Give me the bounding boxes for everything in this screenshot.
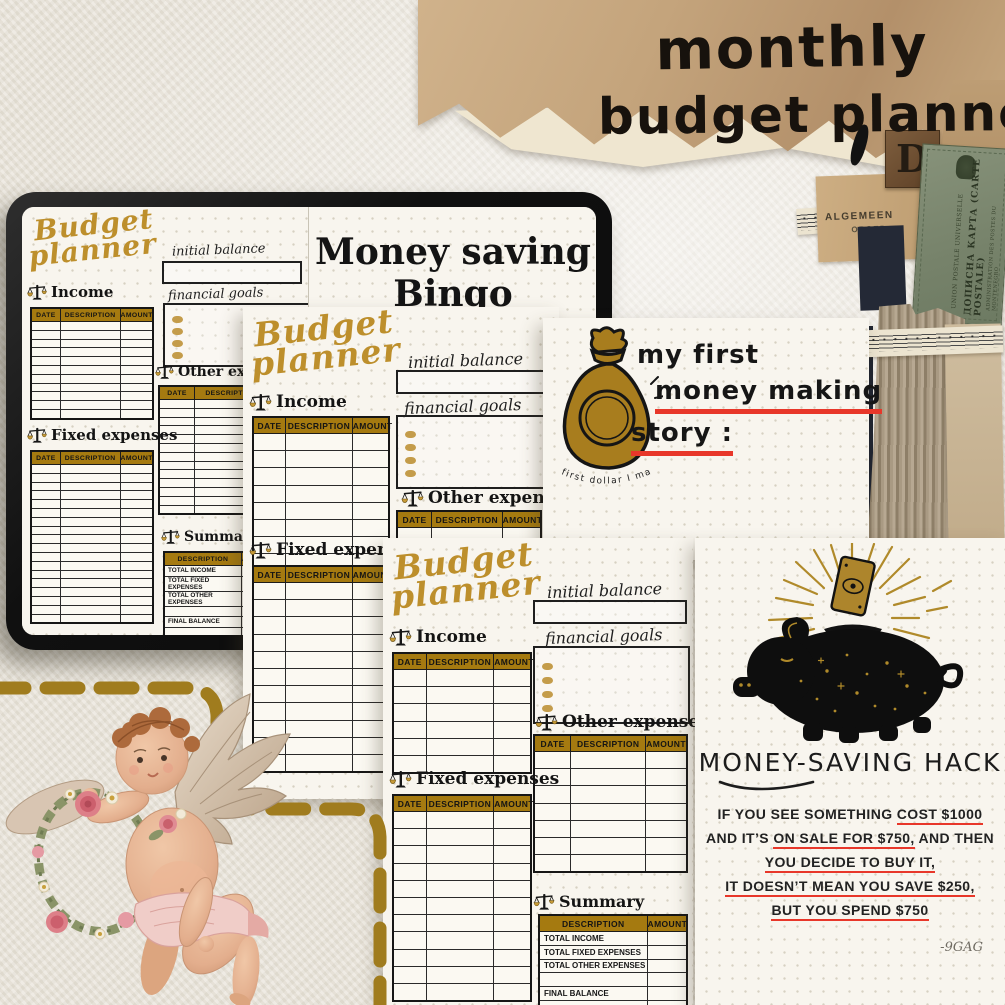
income-table: DATEDESCRIPTIONAMOUNT [392,652,532,774]
goal-bullet-icon [405,470,416,477]
balance-scale-icon [161,529,180,545]
other-expenses-heading: Other expenses [535,712,709,732]
hack-signature: -9GAG [940,940,983,955]
story-line3: story : [631,418,733,448]
goal-bullet-icon [172,328,183,335]
planner-page-3: Budget planner initial balance Income DA… [383,538,693,1005]
money-saving-hack-page: MONEY-SAVING HACK IF YOU SEE SOMETHING C… [695,538,1005,1005]
initial-balance-label: initial balance [172,241,266,259]
balance-scale-icon [249,541,272,560]
main-title-line2: budget planner [598,84,1005,146]
planner-script-title: Budget planner [392,539,542,612]
initial-balance-label: initial balance [547,579,663,602]
balance-scale-icon [389,770,412,789]
financial-goals-box [396,415,546,489]
initial-balance-label: initial balance [408,349,524,372]
summary-table: DESCRIPTIONAMOUNTTOTAL INCOMETOTAL FIXED… [538,914,688,1005]
main-title-line1: monthly [641,13,942,83]
goal-bullet-icon [542,705,553,712]
planner-script-title: Budget planner [252,306,402,379]
underline-swoosh-icon [717,778,817,794]
goal-bullet-icon [172,340,183,347]
goal-bullet-icon [172,352,183,359]
planner-script-title: Budget planner [33,207,158,268]
goal-bullet-icon [405,457,416,464]
vintage-postcard: UNION POSTALE UNIVERSELLE ДОПИСНА КАРТА … [912,143,1005,326]
income-section-heading: Income [389,627,487,647]
initial-balance-box [533,600,687,624]
initial-balance-box [396,370,546,394]
income-section-heading: Income [27,283,113,301]
goal-bullet-icon [172,316,183,323]
navy-fabric [858,225,907,311]
fixed-expenses-table: DATEDESCRIPTIONAMOUNT [30,450,154,624]
financial-goals-label: financial goals [168,285,264,303]
story-line2: money making [655,376,882,406]
goal-bullet-icon [542,677,553,684]
income-table: DATEDESCRIPTIONAMOUNT [30,307,154,420]
balance-scale-icon [27,427,47,444]
balance-scale-icon [533,893,555,911]
hack-body-text: IF YOU SEE SOMETHING COST $1000AND IT’S … [695,802,1005,922]
balance-scale-icon [535,713,558,732]
balance-scale-icon [155,364,174,380]
hack-title: MONEY-SAVING HACK [695,748,1005,777]
bingo-title-line1: Money saving [309,231,596,273]
initial-balance-box [162,261,302,284]
balance-scale-icon [27,284,47,301]
financial-goals-label: financial goals [545,625,663,648]
fixed-expenses-heading: Fixed expenses [27,426,177,444]
goal-bullet-icon [542,691,553,698]
scrap-text: ALGEMEEN [825,210,894,223]
piggy-bank-icon [729,543,985,745]
goal-bullet-icon [542,663,553,670]
balance-scale-icon [401,489,424,508]
goal-bullet-icon [405,431,416,438]
fixed-expenses-table: DATEDESCRIPTIONAMOUNT [392,794,532,1002]
collage-canvas: monthly budget planner ALGEMEEN ORGED D … [0,0,1005,1005]
other-expenses-table: DATEDESCRIPTIONAMOUNT [533,734,688,873]
balance-scale-icon [249,393,272,412]
money-story-page: first dollar I make my first money makin… [543,318,869,560]
sheet-music-scrap [855,325,1004,357]
cherub-illustration [0,672,345,1005]
income-section-heading: Income [249,392,347,412]
balance-scale-icon [389,628,412,647]
summary-heading: Summary [533,892,644,911]
fixed-expenses-heading: Fixed expenses [389,769,559,789]
story-line1: my first [637,340,759,370]
goal-bullet-icon [405,444,416,451]
